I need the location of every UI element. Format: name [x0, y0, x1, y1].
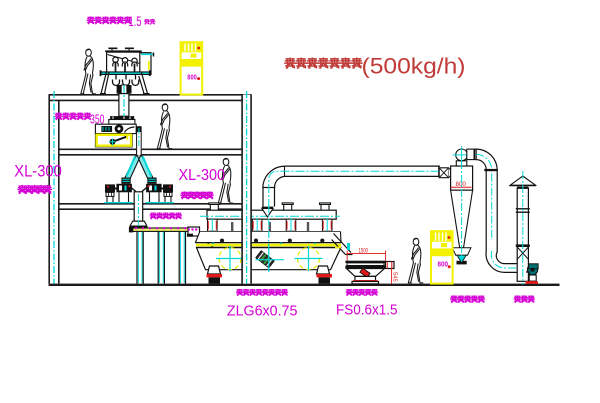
- svg-text:(500kg/h): (500kg/h): [362, 54, 466, 79]
- svg-text:FS0.6x1.5: FS0.6x1.5: [336, 303, 398, 319]
- svg-text:800: 800: [438, 260, 449, 269]
- svg-text:1500: 1500: [359, 248, 369, 255]
- svg-text:ZLG6x0.75: ZLG6x0.75: [227, 303, 298, 320]
- svg-text:545: 545: [392, 272, 398, 282]
- svg-text:800: 800: [187, 72, 197, 81]
- svg-text:XL-300: XL-300: [14, 161, 62, 180]
- svg-text:XL-300: XL-300: [179, 167, 226, 184]
- svg-text:1.5: 1.5: [129, 14, 142, 29]
- svg-text:350: 350: [90, 112, 105, 127]
